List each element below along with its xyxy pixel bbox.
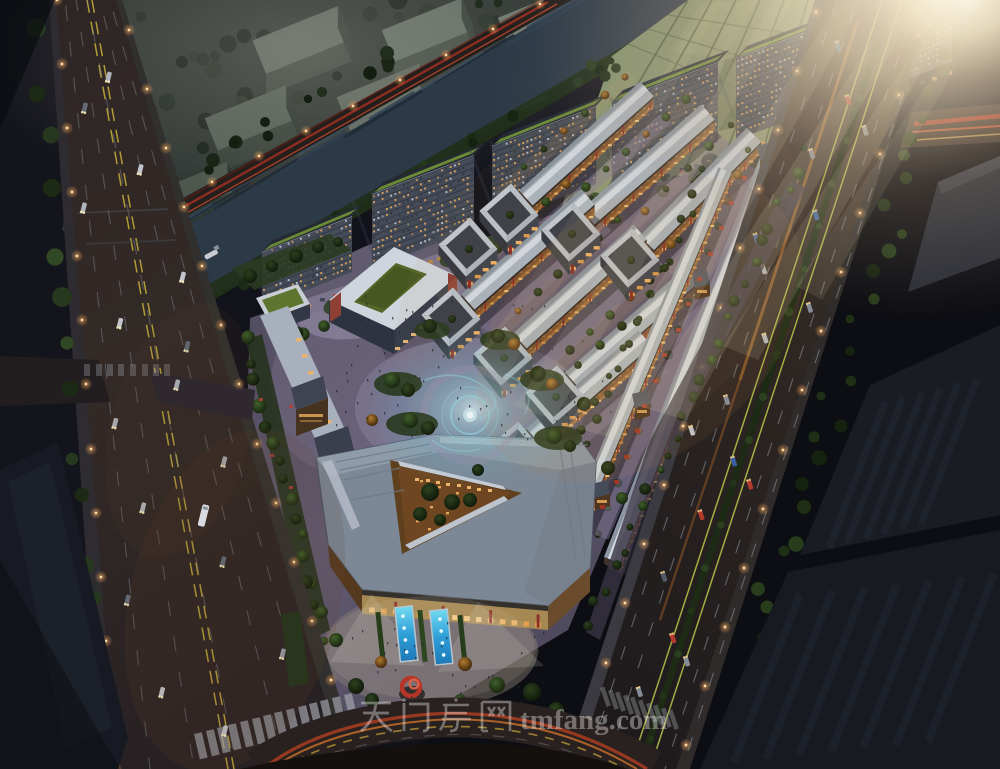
svg-text:tmfang.com: tmfang.com xyxy=(520,704,667,736)
